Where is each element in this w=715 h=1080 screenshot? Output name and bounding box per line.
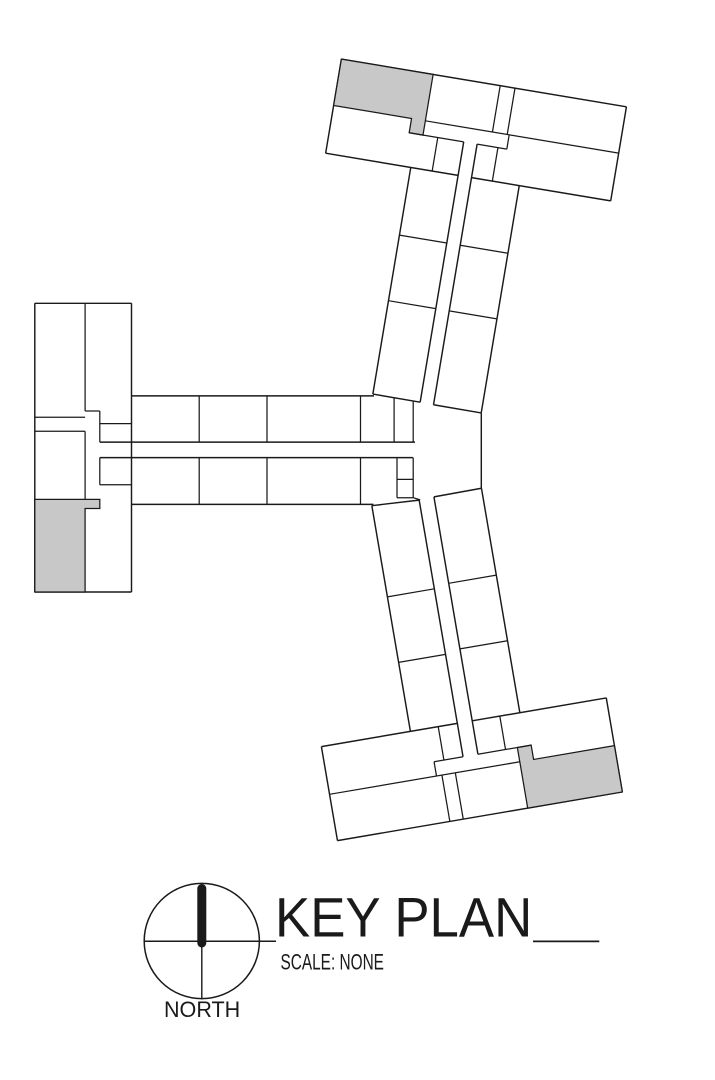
svg-text:NORTH: NORTH (164, 997, 240, 1022)
svg-text:KEY PLAN: KEY PLAN (275, 886, 532, 949)
svg-text:SCALE: NONE: SCALE: NONE (281, 951, 384, 975)
